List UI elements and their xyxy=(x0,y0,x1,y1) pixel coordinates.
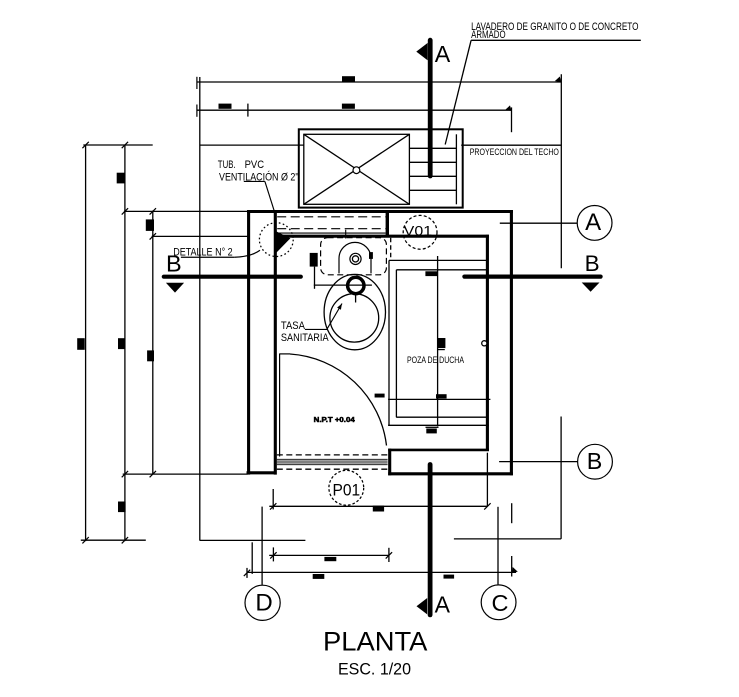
svg-text:B: B xyxy=(585,251,600,276)
svg-text:PLANTA: PLANTA xyxy=(323,627,428,657)
svg-text:B: B xyxy=(587,448,603,474)
svg-text:N.P.T +0.04: N.P.T +0.04 xyxy=(314,417,355,424)
svg-text:ARMADO: ARMADO xyxy=(471,29,506,41)
svg-text:C: C xyxy=(492,590,509,616)
svg-text:POZA DE DUCHA: POZA DE DUCHA xyxy=(407,355,464,365)
svg-text:A: A xyxy=(585,209,601,236)
svg-text:SANITARIA: SANITARIA xyxy=(281,332,329,344)
svg-text:TASA: TASA xyxy=(281,320,306,332)
svg-text:TUB.: TUB. xyxy=(218,159,236,171)
svg-text:P01: P01 xyxy=(333,481,361,499)
svg-text:PROYECCION DEL TECHO: PROYECCION DEL TECHO xyxy=(470,147,559,157)
svg-text:PVC: PVC xyxy=(245,159,265,171)
svg-text:ESC. 1/20: ESC. 1/20 xyxy=(338,660,411,678)
svg-text:A: A xyxy=(435,41,451,67)
svg-text:V01: V01 xyxy=(404,224,433,239)
svg-text:A: A xyxy=(435,592,451,618)
svg-text:D: D xyxy=(255,590,272,617)
